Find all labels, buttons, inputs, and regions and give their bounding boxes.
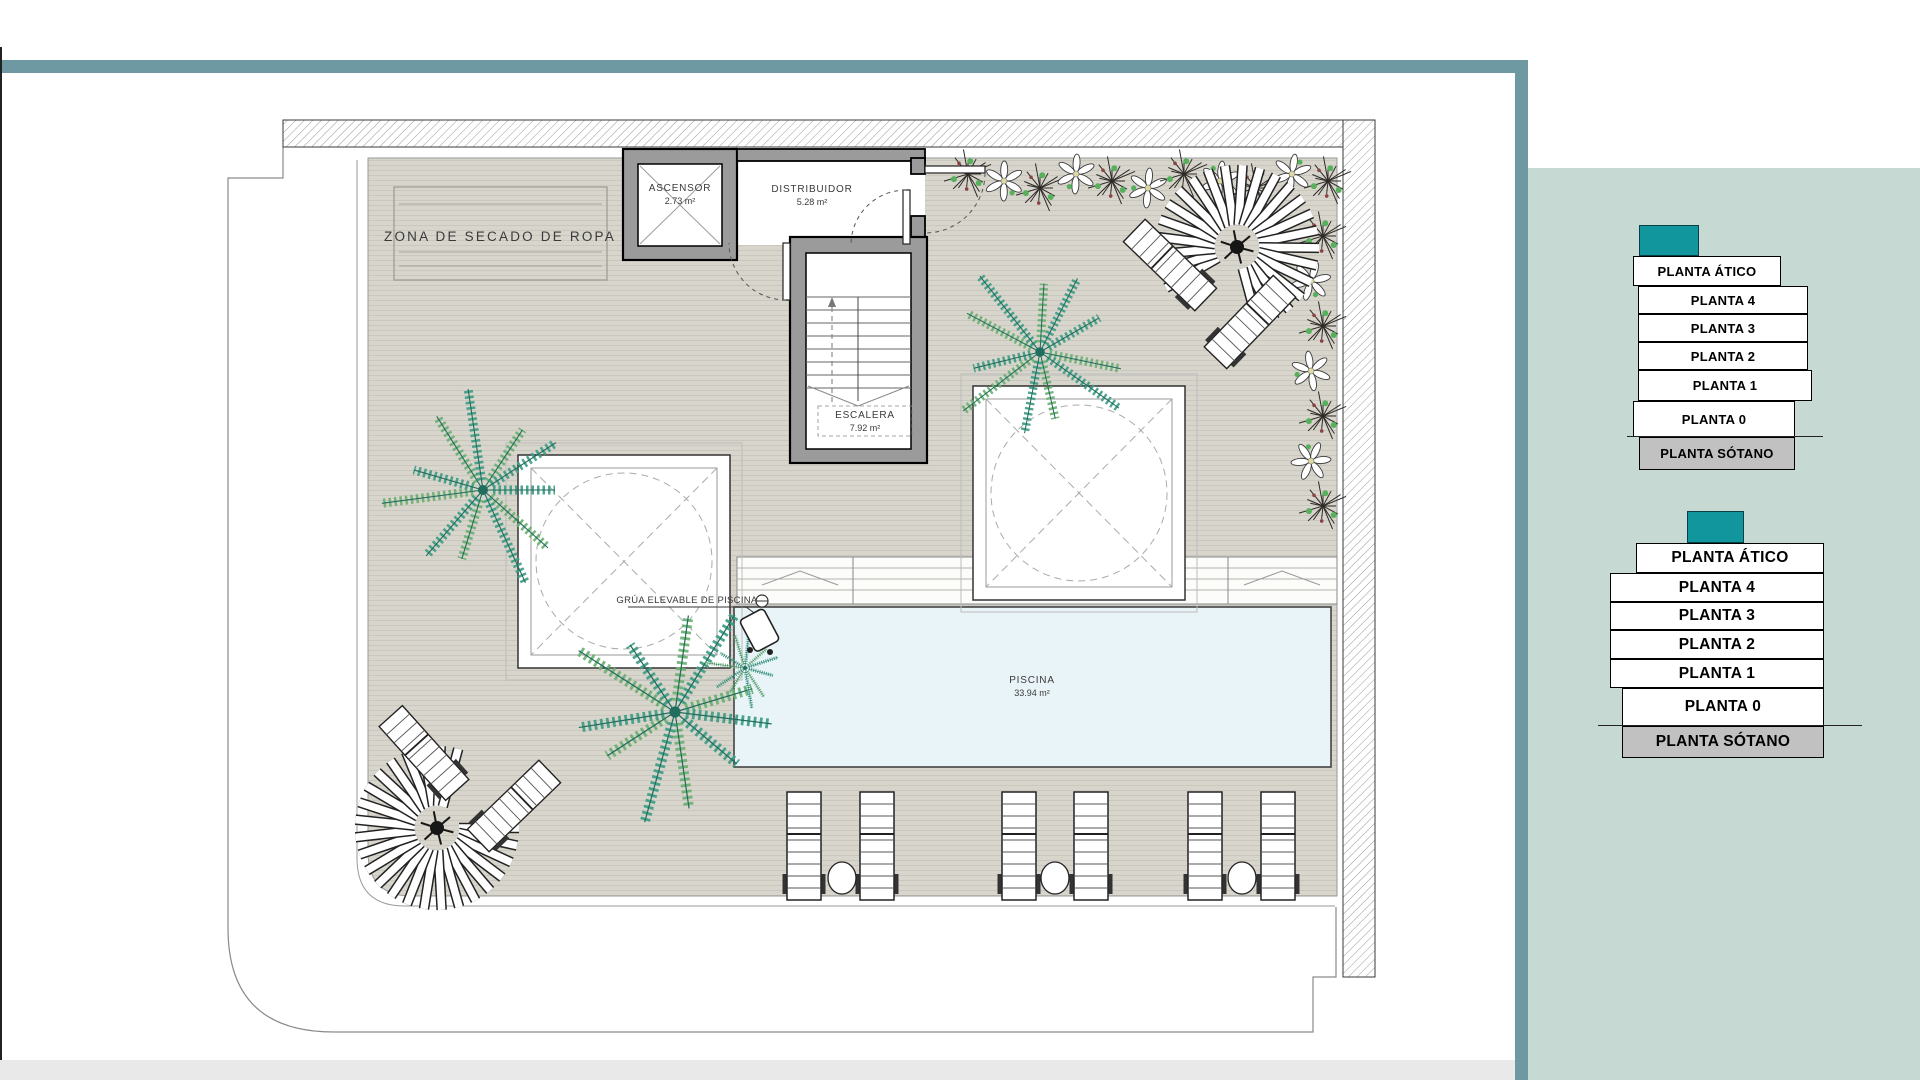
active-floor-tab-top[interactable] (1639, 225, 1699, 256)
floor-button-atico-top[interactable]: PLANTA ÁTICO (1633, 256, 1781, 286)
piscina-label: PISCINA (1009, 675, 1055, 686)
floor-button-planta3-bottom[interactable]: PLANTA 3 (1610, 602, 1824, 630)
floor-button-atico-bottom[interactable]: PLANTA ÁTICO (1636, 543, 1824, 573)
floor-button-planta1-top[interactable]: PLANTA 1 (1638, 370, 1812, 401)
floor-button-planta2-top[interactable]: PLANTA 2 (1638, 342, 1808, 370)
distribuidor-label: DISTRIBUIDOR (771, 184, 852, 195)
hatch-band-top (283, 120, 1375, 147)
floor-button-planta0-top[interactable]: PLANTA 0 (1633, 401, 1795, 437)
skylight-left (506, 443, 742, 680)
skylight-right (961, 374, 1197, 612)
floor-button-planta1-bottom[interactable]: PLANTA 1 (1610, 659, 1824, 688)
floor-button-planta3-top[interactable]: PLANTA 3 (1638, 314, 1808, 342)
screenshot-root: ZONA DE SECADO DE ROPA ASCENSOR 2.73 m² … (0, 0, 1920, 1080)
floor-button-planta4-bottom[interactable]: PLANTA 4 (1610, 573, 1824, 602)
active-floor-tab-bottom[interactable] (1687, 511, 1744, 543)
ascensor-label: ASCENSOR (649, 183, 712, 194)
floor-button-sotano-bottom[interactable]: PLANTA SÓTANO (1622, 726, 1824, 758)
floor-button-planta4-top[interactable]: PLANTA 4 (1638, 286, 1808, 314)
distribuidor-floor (737, 161, 925, 245)
pool (734, 607, 1331, 767)
distribuidor-area: 5.28 m² (797, 197, 828, 207)
piscina-area: 33.94 m² (1014, 688, 1050, 698)
drying-zone-label: ZONA DE SECADO DE ROPA (384, 229, 616, 244)
escalera-area: 7.92 m² (850, 423, 881, 433)
hatch-band-right (1343, 120, 1375, 977)
floor-button-sotano-top[interactable]: PLANTA SÓTANO (1639, 437, 1795, 470)
floor-button-planta2-bottom[interactable]: PLANTA 2 (1610, 630, 1824, 659)
ascensor-area: 2.73 m² (665, 196, 696, 206)
floor-button-planta0-bottom[interactable]: PLANTA 0 (1622, 688, 1824, 726)
pool-hoist-label: GRÚA ELEVABLE DE PISCINA (616, 595, 757, 606)
escalera-label: ESCALERA (835, 410, 895, 421)
floor-plan-drawing: ZONA DE SECADO DE ROPA ASCENSOR 2.73 m² … (0, 0, 1530, 1080)
